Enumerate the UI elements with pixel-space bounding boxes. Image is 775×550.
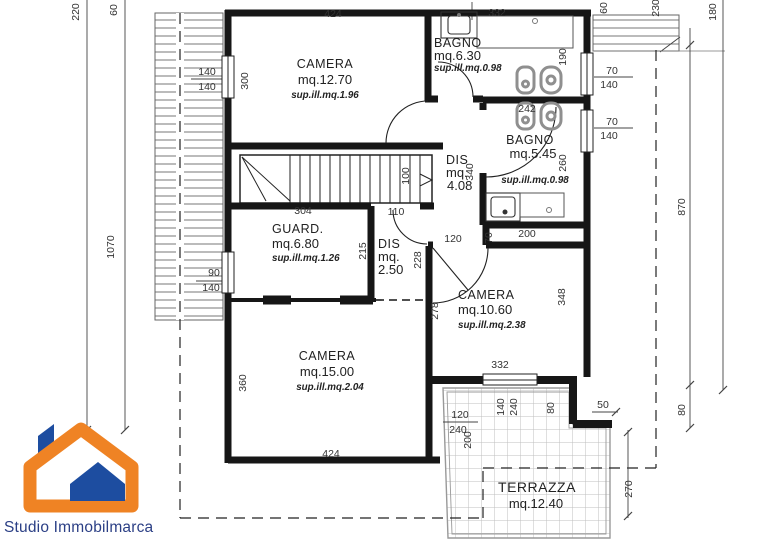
dim-label: 240 bbox=[508, 398, 520, 416]
dim-label: 100 bbox=[400, 167, 412, 185]
dim-label: 348 bbox=[556, 288, 568, 306]
room-label-guard: GUARD. mq.6.80 sup.ill.mq.1.26 bbox=[272, 222, 340, 264]
room-area: mq.6.80 bbox=[272, 236, 319, 251]
room-area: mq.5.45 bbox=[510, 146, 557, 161]
dim-label: 140 bbox=[600, 130, 618, 142]
dim-label: 200 bbox=[518, 228, 536, 240]
dim-label: 190 bbox=[557, 48, 569, 66]
room-area: mq.15.00 bbox=[300, 364, 354, 379]
dim-label: 140 bbox=[600, 79, 618, 91]
room-area: mq.12.40 bbox=[509, 496, 563, 511]
room-name: CAMERA bbox=[299, 349, 356, 363]
window-bottom bbox=[483, 374, 537, 385]
room-sup: sup.ill.mq.1.96 bbox=[291, 90, 359, 101]
balcony-top-right-hatch bbox=[593, 15, 725, 52]
room-sup: sup.ill.mq.2.04 bbox=[296, 382, 364, 393]
dim-label: 220 bbox=[70, 3, 82, 21]
agency-logo: Studio Immobilmarca bbox=[4, 424, 154, 536]
room-label-bagno1: BAGNO mq.6.30 sup.ill.mq.0.98 bbox=[434, 36, 502, 74]
dim-label: 80 bbox=[545, 402, 557, 414]
door-camera1 bbox=[386, 101, 428, 143]
room-sup: sup.ill.mq.0.98 bbox=[434, 63, 502, 74]
room-label-camera1: CAMERA mq.12.70 sup.ill.mq.1.96 bbox=[291, 57, 359, 101]
dim-label: 50 bbox=[597, 399, 609, 411]
room-name: CAMERA bbox=[458, 288, 515, 302]
room-name: BAGNO bbox=[506, 133, 554, 147]
dim-label: 140 bbox=[198, 66, 216, 78]
counter bbox=[477, 16, 573, 48]
window-right-1 bbox=[581, 53, 593, 95]
window-left-2 bbox=[222, 252, 234, 293]
room-label-camera2: CAMERA mq.10.60 sup.ill.mq.2.38 bbox=[458, 288, 526, 331]
drain-symbol bbox=[533, 19, 538, 24]
toilet-icon bbox=[517, 67, 534, 93]
dim-label: 180 bbox=[707, 3, 719, 21]
dim-label: 424 bbox=[324, 8, 342, 20]
dim-label: 1070 bbox=[105, 235, 117, 259]
window-left-1 bbox=[222, 56, 234, 98]
room-sup: sup.ill.mq.0.98 bbox=[501, 175, 569, 186]
dim-label: 140 bbox=[198, 81, 216, 93]
dim-label: 110 bbox=[388, 206, 405, 218]
dim-label: 215 bbox=[357, 242, 369, 260]
dim-label: 70 bbox=[606, 116, 618, 128]
room-area: mq.12.70 bbox=[298, 72, 352, 87]
window-right-2 bbox=[581, 110, 593, 152]
dim-label: 242 bbox=[518, 103, 536, 115]
dim-label: 300 bbox=[239, 72, 251, 90]
dim-label: 80 bbox=[676, 404, 688, 416]
room-sup: sup.ill.mq.1.26 bbox=[272, 253, 340, 264]
logo-text: Studio Immobilmarca bbox=[4, 519, 154, 536]
room-name: CAMERA bbox=[297, 57, 354, 71]
dim-label: 60 bbox=[108, 4, 120, 16]
dim-label: 60 bbox=[598, 2, 610, 14]
room-area: 2.50 bbox=[378, 262, 403, 277]
dim-label: 140 bbox=[495, 398, 507, 416]
bidet-icon bbox=[541, 103, 561, 129]
dim-label: 90 bbox=[208, 267, 220, 279]
dim-label: 340 bbox=[464, 163, 476, 181]
dim-label: 332 bbox=[488, 7, 506, 19]
room-area: mq.6.30 bbox=[434, 48, 481, 63]
dim-label: 304 bbox=[294, 205, 312, 217]
floor-plan-svg: CAMERA mq.12.70 sup.ill.mq.1.96 BAGNO mq… bbox=[0, 0, 775, 550]
room-label-dis2: DIS mq. 2.50 bbox=[378, 237, 403, 277]
room-area: mq.10.60 bbox=[458, 302, 512, 317]
dim-label: 228 bbox=[412, 251, 424, 269]
shower-icon bbox=[486, 193, 520, 221]
drain-symbol bbox=[547, 208, 552, 213]
dim-label: 424 bbox=[322, 448, 340, 460]
room-name: TERRAZZA bbox=[498, 479, 576, 495]
dim-label: 270 bbox=[623, 480, 635, 498]
dim-label: 70 bbox=[606, 65, 618, 77]
dim-label: 278 bbox=[429, 302, 441, 320]
dim-label: 140 bbox=[202, 282, 220, 294]
dim-label: 360 bbox=[237, 374, 249, 392]
floor-plan-page: CAMERA mq.12.70 sup.ill.mq.1.96 BAGNO mq… bbox=[0, 0, 775, 550]
room-name: GUARD. bbox=[272, 222, 324, 236]
dim-label: 870 bbox=[676, 198, 688, 216]
room-sup: sup.ill.mq.2.38 bbox=[458, 320, 526, 331]
bidet-icon bbox=[541, 67, 561, 93]
dim-label: 70 bbox=[483, 232, 495, 244]
dim-label: 260 bbox=[557, 154, 569, 172]
dim-label: 120 bbox=[444, 233, 462, 245]
dim-label: 120 bbox=[451, 409, 469, 421]
dim-label: 200 bbox=[462, 431, 474, 449]
dim-label: 332 bbox=[491, 359, 509, 371]
dim-label: 230 bbox=[650, 0, 662, 17]
room-label-camera3: CAMERA mq.15.00 sup.ill.mq.2.04 bbox=[296, 349, 364, 393]
counter bbox=[520, 193, 564, 217]
